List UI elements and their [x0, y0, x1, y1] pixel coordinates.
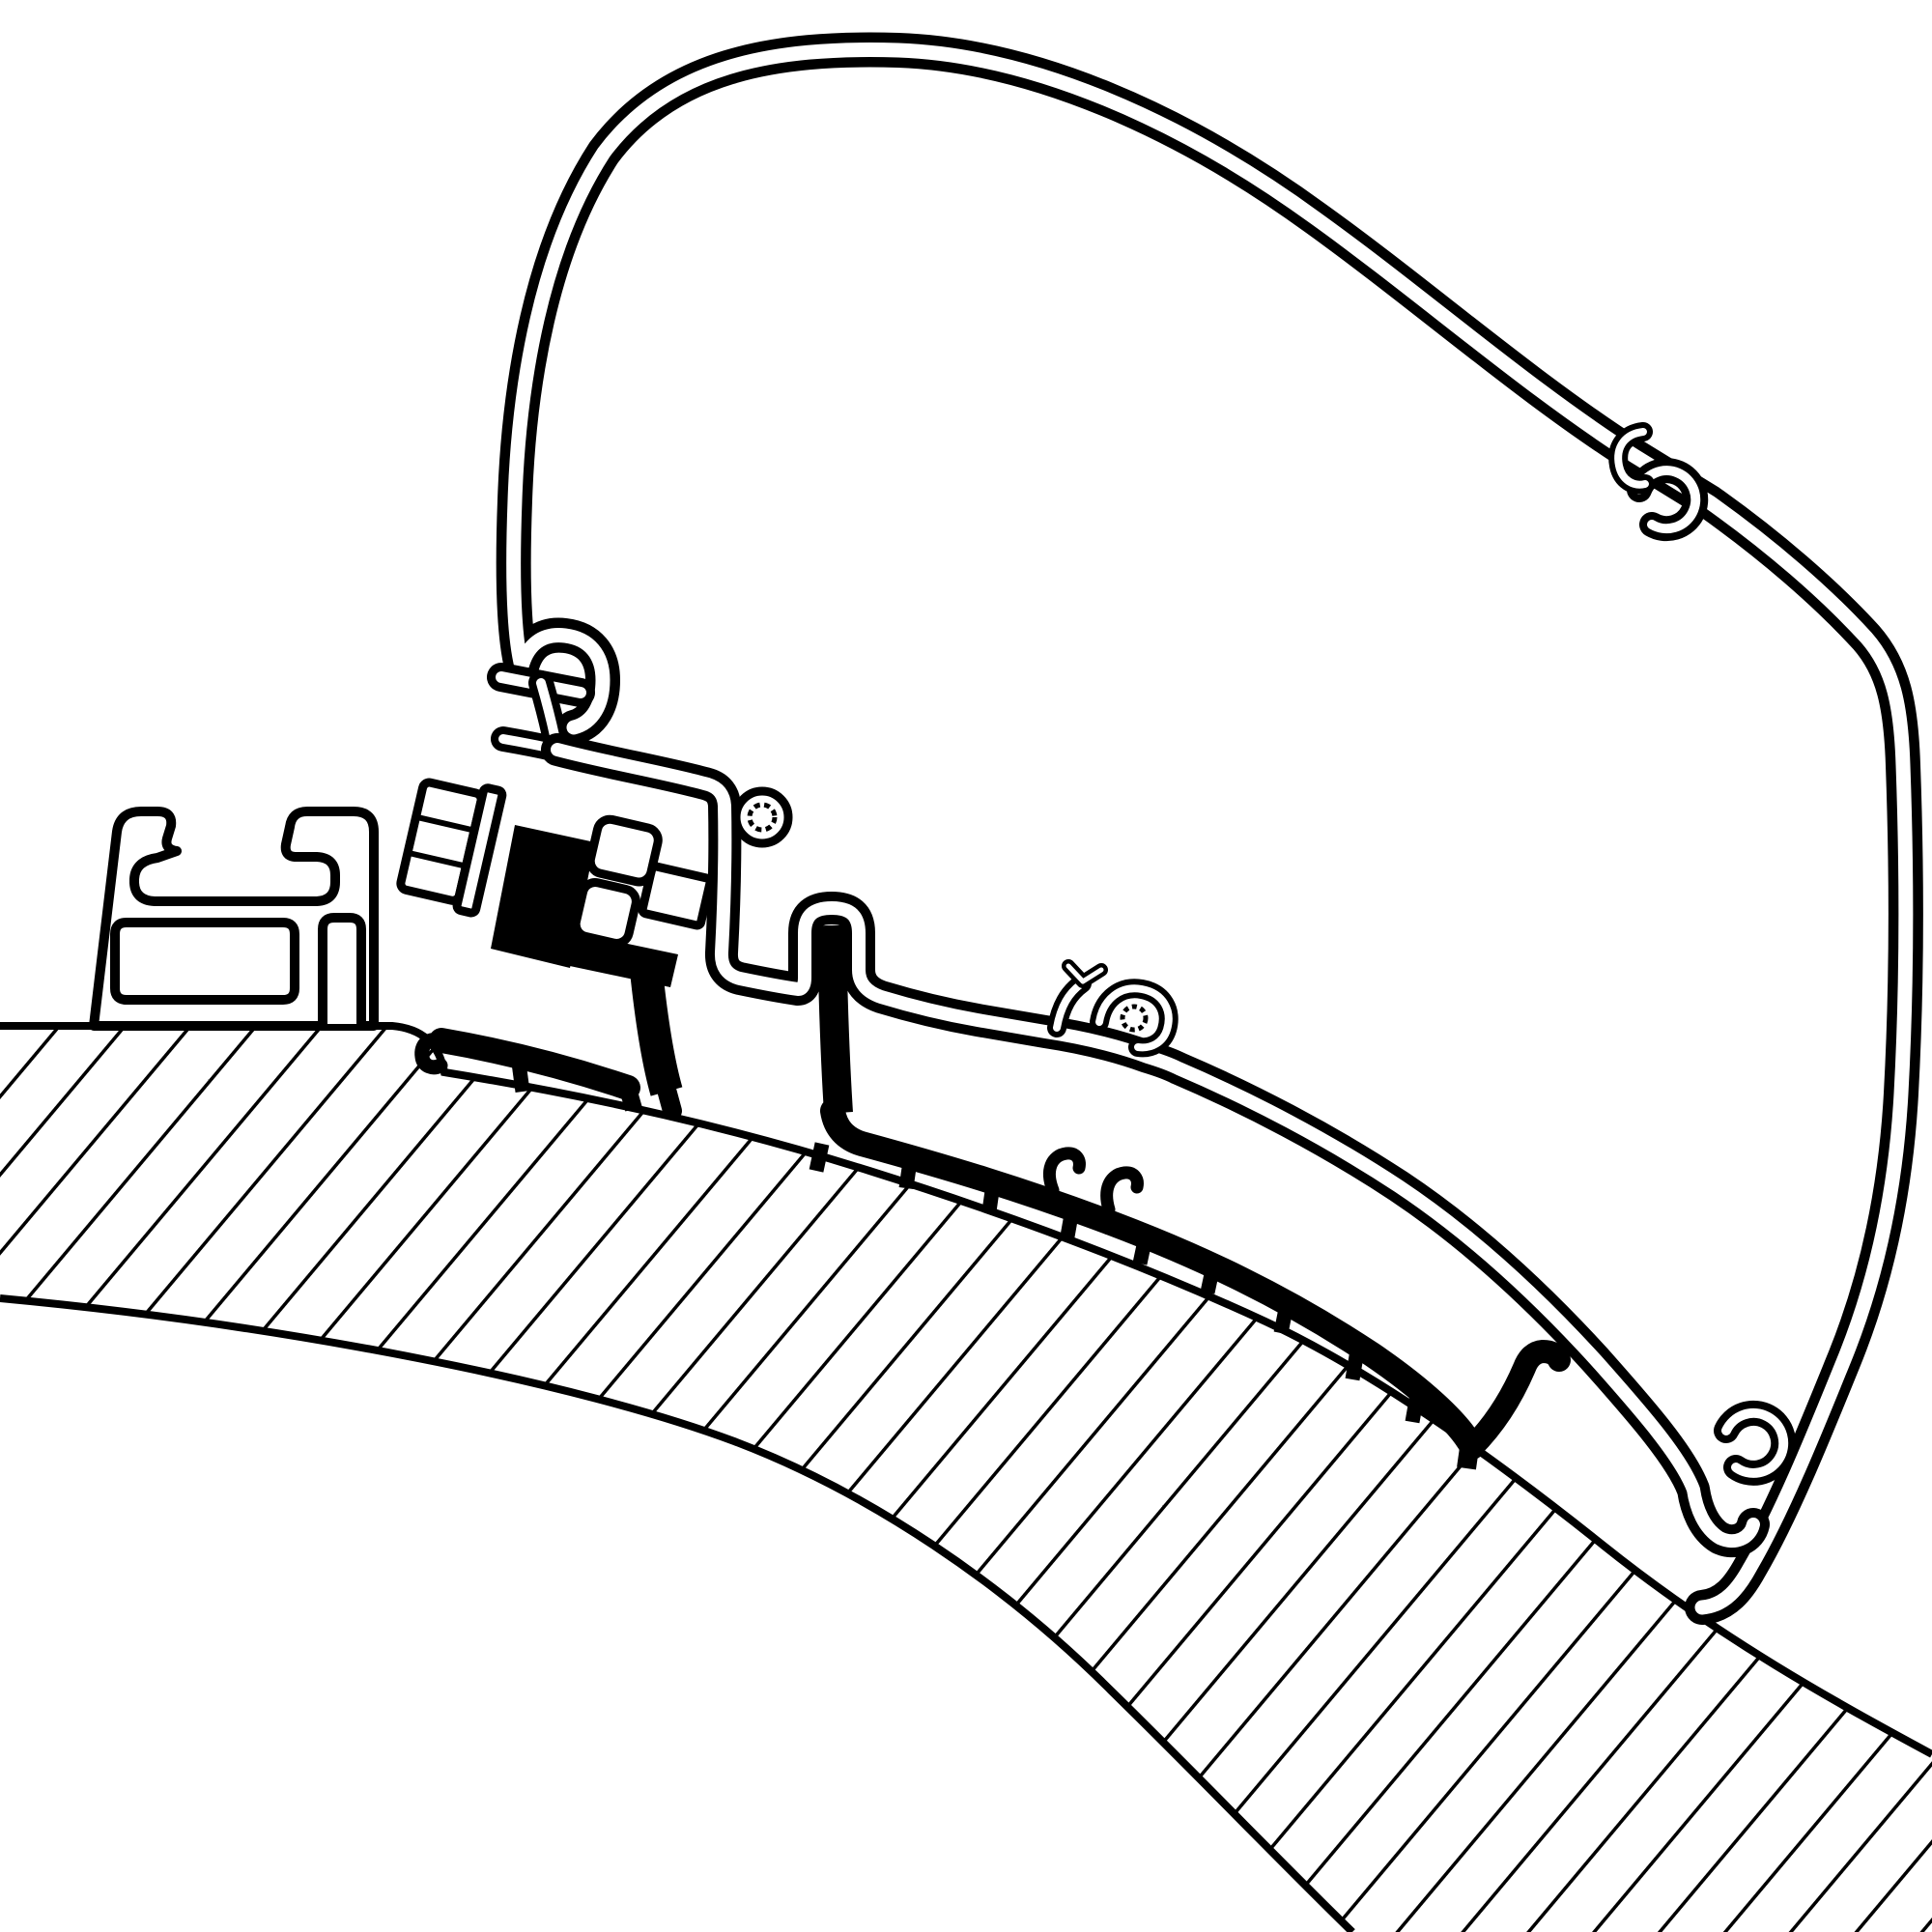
rail-tick	[1140, 1236, 1146, 1264]
bolt-nut-block-lower	[574, 880, 639, 946]
rail-tick	[1352, 1345, 1358, 1379]
diagram-stage: Awning roof-adapter cross-section techni…	[0, 0, 1932, 1932]
rail-tick	[816, 1144, 822, 1171]
adapter-foot-tick-2	[626, 1082, 634, 1109]
adapter-foot-tick-1	[519, 1063, 523, 1092]
adapter-upright-foot	[667, 1090, 672, 1111]
bolt-nut-block-upper	[588, 817, 661, 885]
rail-end-foot	[1466, 1441, 1470, 1468]
rail-tick	[1207, 1265, 1213, 1293]
rail-tick	[1412, 1389, 1418, 1422]
left-rail-slot	[323, 918, 361, 1024]
rail-tick	[906, 1161, 910, 1188]
rail-tick	[989, 1184, 993, 1211]
rail-tick	[1281, 1304, 1287, 1333]
rail-tick	[1067, 1209, 1072, 1236]
diagram-canvas: Awning roof-adapter cross-section techni…	[0, 0, 1932, 1932]
adapter-upright-leg	[645, 961, 667, 1092]
screw-boss	[736, 791, 788, 843]
adapter-clamp-flange	[832, 925, 838, 1113]
left-rail-window	[115, 923, 295, 1000]
